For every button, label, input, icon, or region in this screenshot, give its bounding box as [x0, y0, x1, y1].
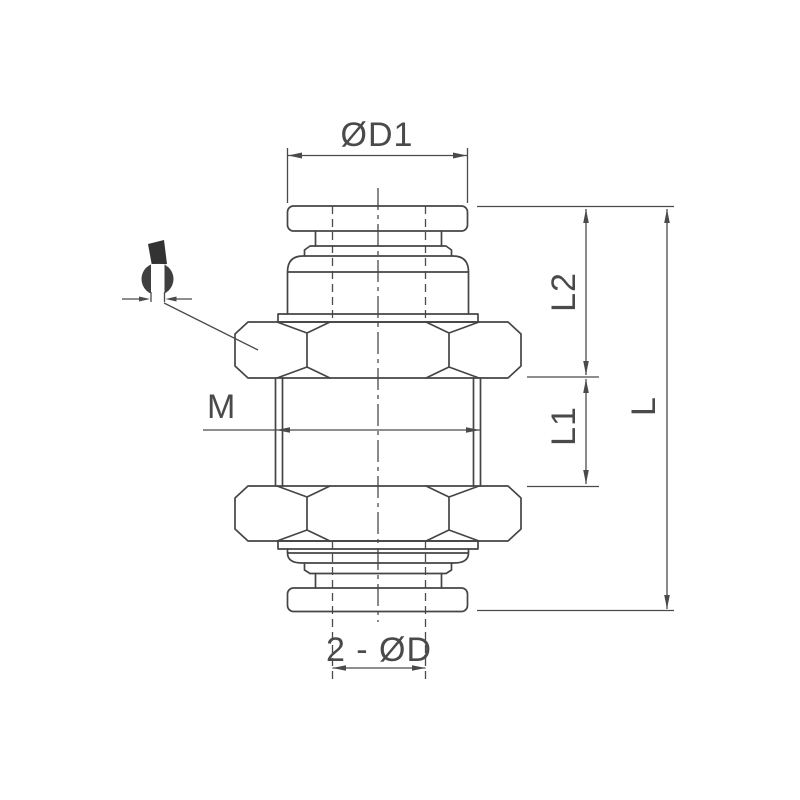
l-arrow-top	[664, 209, 670, 223]
d1-label: ØD1	[341, 116, 414, 154]
dimension-m: M	[203, 388, 480, 433]
dimension-l1: L1	[545, 379, 589, 484]
l-arrow-bottom	[664, 595, 670, 609]
dimension-d: 2 - ØD	[326, 631, 432, 671]
l2-arrow-bottom	[583, 361, 589, 375]
l2-arrow-top	[583, 209, 589, 223]
wrench-flats-arrow-left	[139, 297, 150, 302]
technical-drawing-page: ØD1 L2 L1 L M	[0, 0, 800, 800]
m-label: M	[207, 388, 236, 426]
l1-arrow-top	[583, 379, 589, 393]
d1-arrow-left	[288, 153, 302, 159]
centerlines	[333, 188, 426, 679]
l1-arrow-bottom	[583, 470, 589, 484]
l-label: L	[625, 396, 663, 416]
wrench-flats-arrow-right	[166, 297, 177, 302]
d1-arrow-right	[453, 153, 467, 159]
l1-label: L1	[545, 406, 583, 446]
dimension-l2: L2	[545, 209, 589, 375]
wrench-handle	[148, 240, 167, 266]
wrench-jaw-slot	[151, 264, 165, 302]
d-label: 2 - ØD	[326, 631, 432, 669]
l2-label: L2	[545, 272, 583, 312]
wrench-icon	[122, 240, 258, 350]
fitting-drawing-canvas: ØD1 L2 L1 L M	[0, 0, 800, 800]
dimension-l: L	[625, 209, 670, 609]
